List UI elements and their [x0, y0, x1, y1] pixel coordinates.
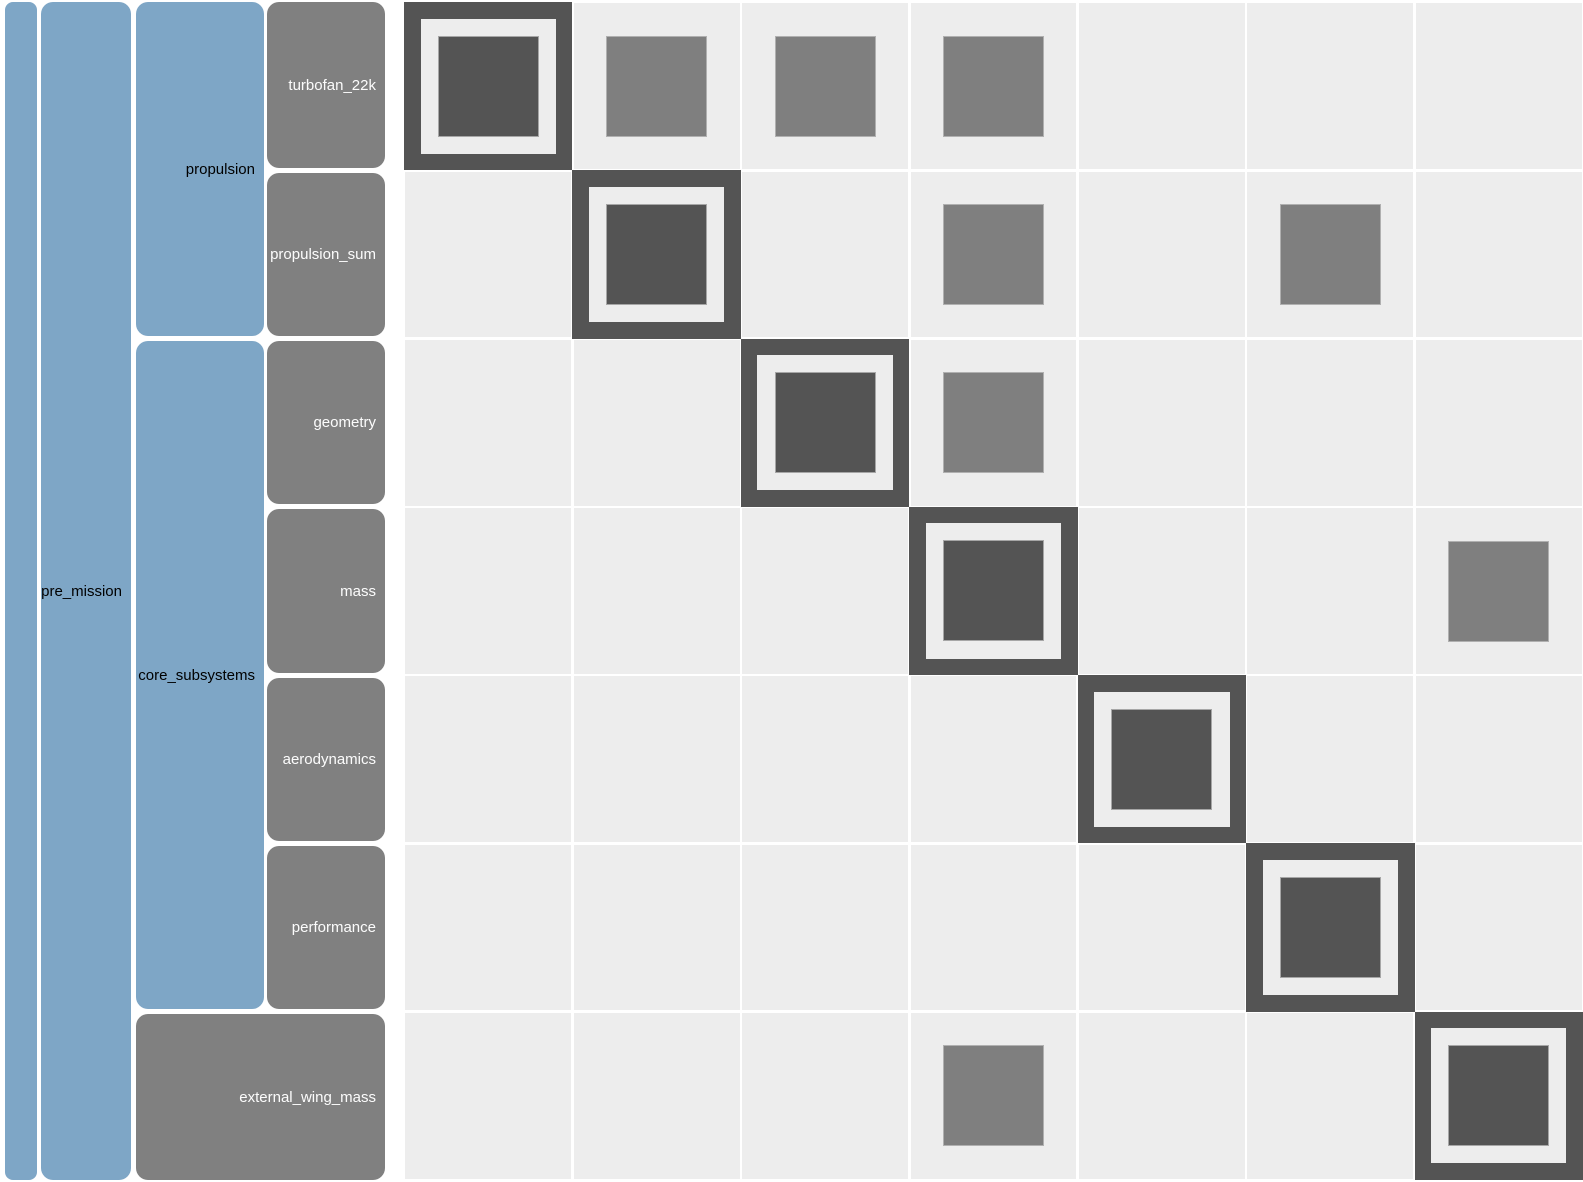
- matrix-background-cell: [1079, 508, 1245, 674]
- matrix-background-cell: [1416, 676, 1582, 842]
- matrix-background-cell: [405, 1013, 571, 1179]
- matrix-connection-propulsion_sum-x-performance[interactable]: [1280, 204, 1381, 305]
- matrix-background-cell: [742, 172, 908, 338]
- matrix-background-cell: [574, 845, 740, 1011]
- diagonal-cell-core: [1111, 709, 1212, 810]
- matrix-background-cell: [405, 172, 571, 338]
- matrix-connection-turbofan_22k-x-mass[interactable]: [943, 36, 1044, 137]
- diagonal-cell-core: [606, 204, 707, 305]
- matrix-diagonal-cell-external_wing_mass[interactable]: [1415, 1012, 1583, 1180]
- diagonal-cell-core: [1448, 1045, 1549, 1146]
- matrix-diagonal-cell-mass[interactable]: [909, 507, 1077, 675]
- matrix-background-cell: [405, 508, 571, 674]
- matrix-background-cell: [1247, 3, 1413, 169]
- matrix-connection-mass-x-external_wing_mass[interactable]: [1448, 541, 1549, 642]
- matrix-background-cell: [405, 340, 571, 506]
- diagonal-cell-frame: [1263, 860, 1398, 995]
- matrix-background-cell: [1079, 845, 1245, 1011]
- matrix-background-cell: [1247, 1013, 1413, 1179]
- matrix-background-cell: [911, 845, 1077, 1011]
- matrix-background-cell: [1079, 172, 1245, 338]
- diagonal-cell-core: [775, 372, 876, 473]
- matrix-background-cell: [574, 1013, 740, 1179]
- diagonal-cell-frame: [757, 355, 892, 490]
- diagonal-cell-core: [438, 36, 539, 137]
- matrix-diagonal-cell-geometry[interactable]: [741, 339, 909, 507]
- matrix-background-cell: [574, 340, 740, 506]
- matrix-background-cell: [405, 676, 571, 842]
- matrix-connection-turbofan_22k-x-propulsion_sum[interactable]: [606, 36, 707, 137]
- diagonal-cell-core: [1280, 877, 1381, 978]
- matrix-connection-propulsion_sum-x-mass[interactable]: [943, 204, 1044, 305]
- matrix-background-cell: [742, 1013, 908, 1179]
- matrix-background-cell: [1247, 676, 1413, 842]
- diagonal-cell-frame: [421, 19, 556, 154]
- matrix-connection-turbofan_22k-x-geometry[interactable]: [775, 36, 876, 137]
- matrix-background-cell: [1416, 3, 1582, 169]
- matrix-background-cell: [742, 845, 908, 1011]
- matrix-background-cell: [1079, 3, 1245, 169]
- matrix-background-cell: [1079, 1013, 1245, 1179]
- matrix-background-cell: [911, 676, 1077, 842]
- n2-diagram: pre_mission propulsion core_subsystems t…: [0, 0, 1583, 1182]
- matrix-diagonal-cell-aerodynamics[interactable]: [1078, 675, 1246, 843]
- matrix-diagonal-cell-performance[interactable]: [1246, 843, 1414, 1011]
- matrix-background-cell: [1416, 172, 1582, 338]
- diagonal-cell-frame: [926, 523, 1061, 658]
- n2-matrix: [0, 0, 1583, 1182]
- matrix-background-cell: [1247, 340, 1413, 506]
- matrix-background-cell: [1416, 340, 1582, 506]
- matrix-background-cell: [405, 845, 571, 1011]
- matrix-background-cell: [1079, 340, 1245, 506]
- diagonal-cell-frame: [1094, 692, 1229, 827]
- matrix-background-cell: [742, 676, 908, 842]
- matrix-connection-geometry-x-mass[interactable]: [943, 372, 1044, 473]
- matrix-diagonal-cell-propulsion_sum[interactable]: [572, 170, 740, 338]
- matrix-background-cell: [574, 508, 740, 674]
- diagonal-cell-frame: [1431, 1028, 1566, 1163]
- matrix-background-cell: [742, 508, 908, 674]
- diagonal-cell-frame: [589, 187, 724, 322]
- matrix-diagonal-cell-turbofan_22k[interactable]: [404, 2, 572, 170]
- matrix-background-cell: [1416, 845, 1582, 1011]
- matrix-background-cell: [1247, 508, 1413, 674]
- diagonal-cell-core: [943, 540, 1044, 641]
- matrix-background-cell: [574, 676, 740, 842]
- matrix-connection-external_wing_mass-x-mass[interactable]: [943, 1045, 1044, 1146]
